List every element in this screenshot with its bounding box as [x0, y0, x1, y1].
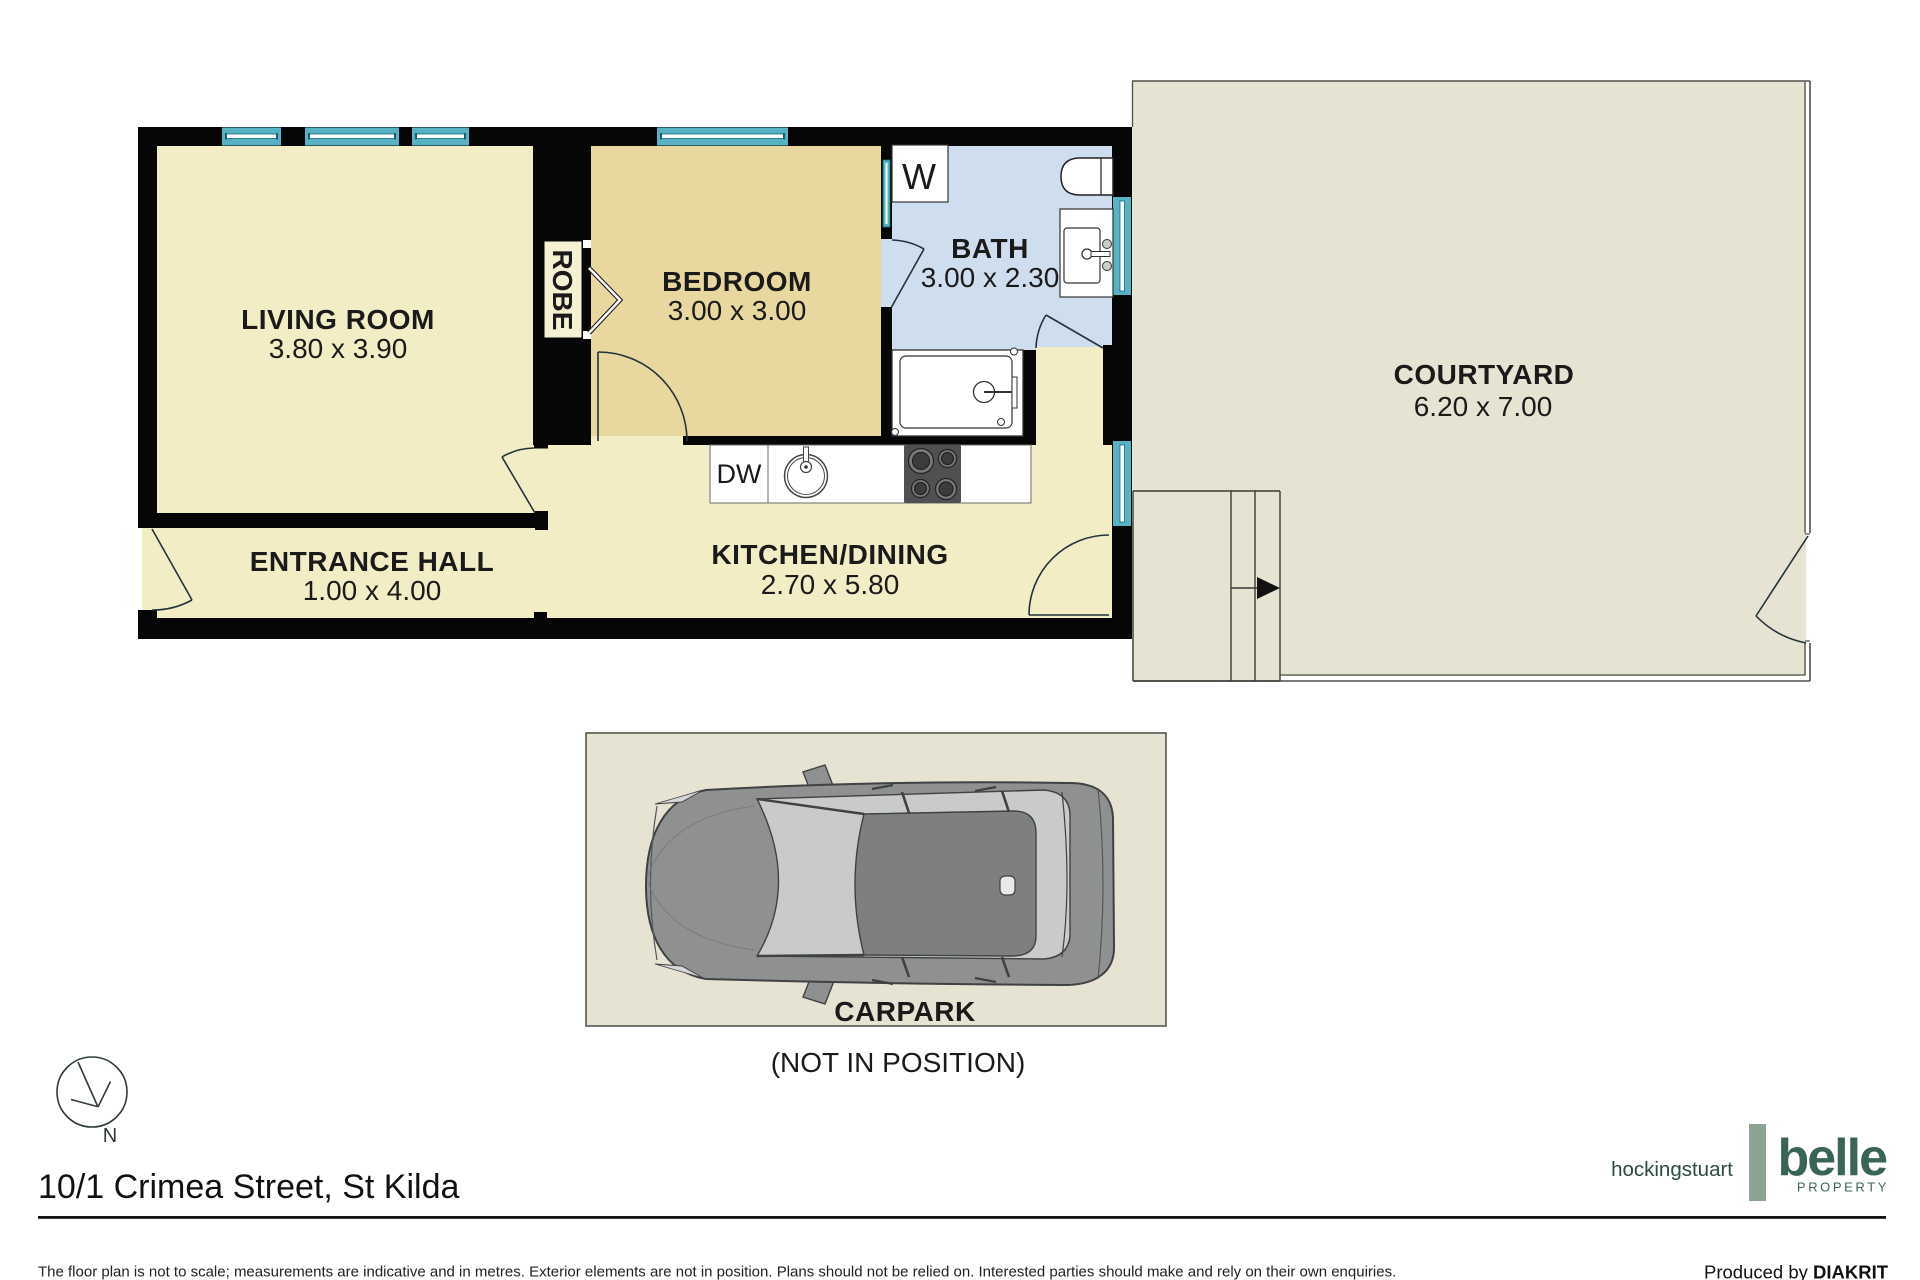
svg-text:W: W [902, 156, 936, 197]
svg-text:PROPERTY: PROPERTY [1797, 1180, 1889, 1195]
svg-text:Produced by DIAKRIT: Produced by DIAKRIT [1704, 1262, 1889, 1280]
svg-text:COURTYARD: COURTYARD [1394, 359, 1575, 390]
svg-text:hockingstuart: hockingstuart [1611, 1158, 1733, 1181]
svg-text:10/1 Crimea Street, St Kilda: 10/1 Crimea Street, St Kilda [38, 1168, 460, 1206]
svg-text:The floor plan is not to scale: The floor plan is not to scale; measurem… [38, 1264, 1396, 1280]
svg-text:3.00 x 2.30: 3.00 x 2.30 [921, 262, 1060, 293]
svg-text:DW: DW [717, 459, 762, 489]
svg-text:CARPARK: CARPARK [834, 996, 975, 1027]
svg-text:BEDROOM: BEDROOM [662, 266, 812, 297]
svg-text:N: N [103, 1125, 117, 1147]
svg-text:1.00 x 4.00: 1.00 x 4.00 [303, 575, 442, 606]
svg-text:KITCHEN/DINING: KITCHEN/DINING [711, 539, 948, 570]
svg-text:ENTRANCE HALL: ENTRANCE HALL [250, 546, 495, 577]
svg-text:LIVING ROOM: LIVING ROOM [241, 304, 435, 335]
svg-text:(NOT IN POSITION): (NOT IN POSITION) [771, 1047, 1026, 1078]
svg-text:6.20 x 7.00: 6.20 x 7.00 [1414, 391, 1553, 422]
svg-text:BATH: BATH [951, 233, 1029, 264]
svg-text:ROBE: ROBE [547, 250, 578, 331]
svg-text:belle: belle [1778, 1129, 1888, 1187]
svg-text:2.70 x 5.80: 2.70 x 5.80 [761, 569, 900, 600]
svg-text:3.00 x 3.00: 3.00 x 3.00 [668, 295, 807, 326]
svg-text:3.80 x 3.90: 3.80 x 3.90 [269, 333, 408, 364]
